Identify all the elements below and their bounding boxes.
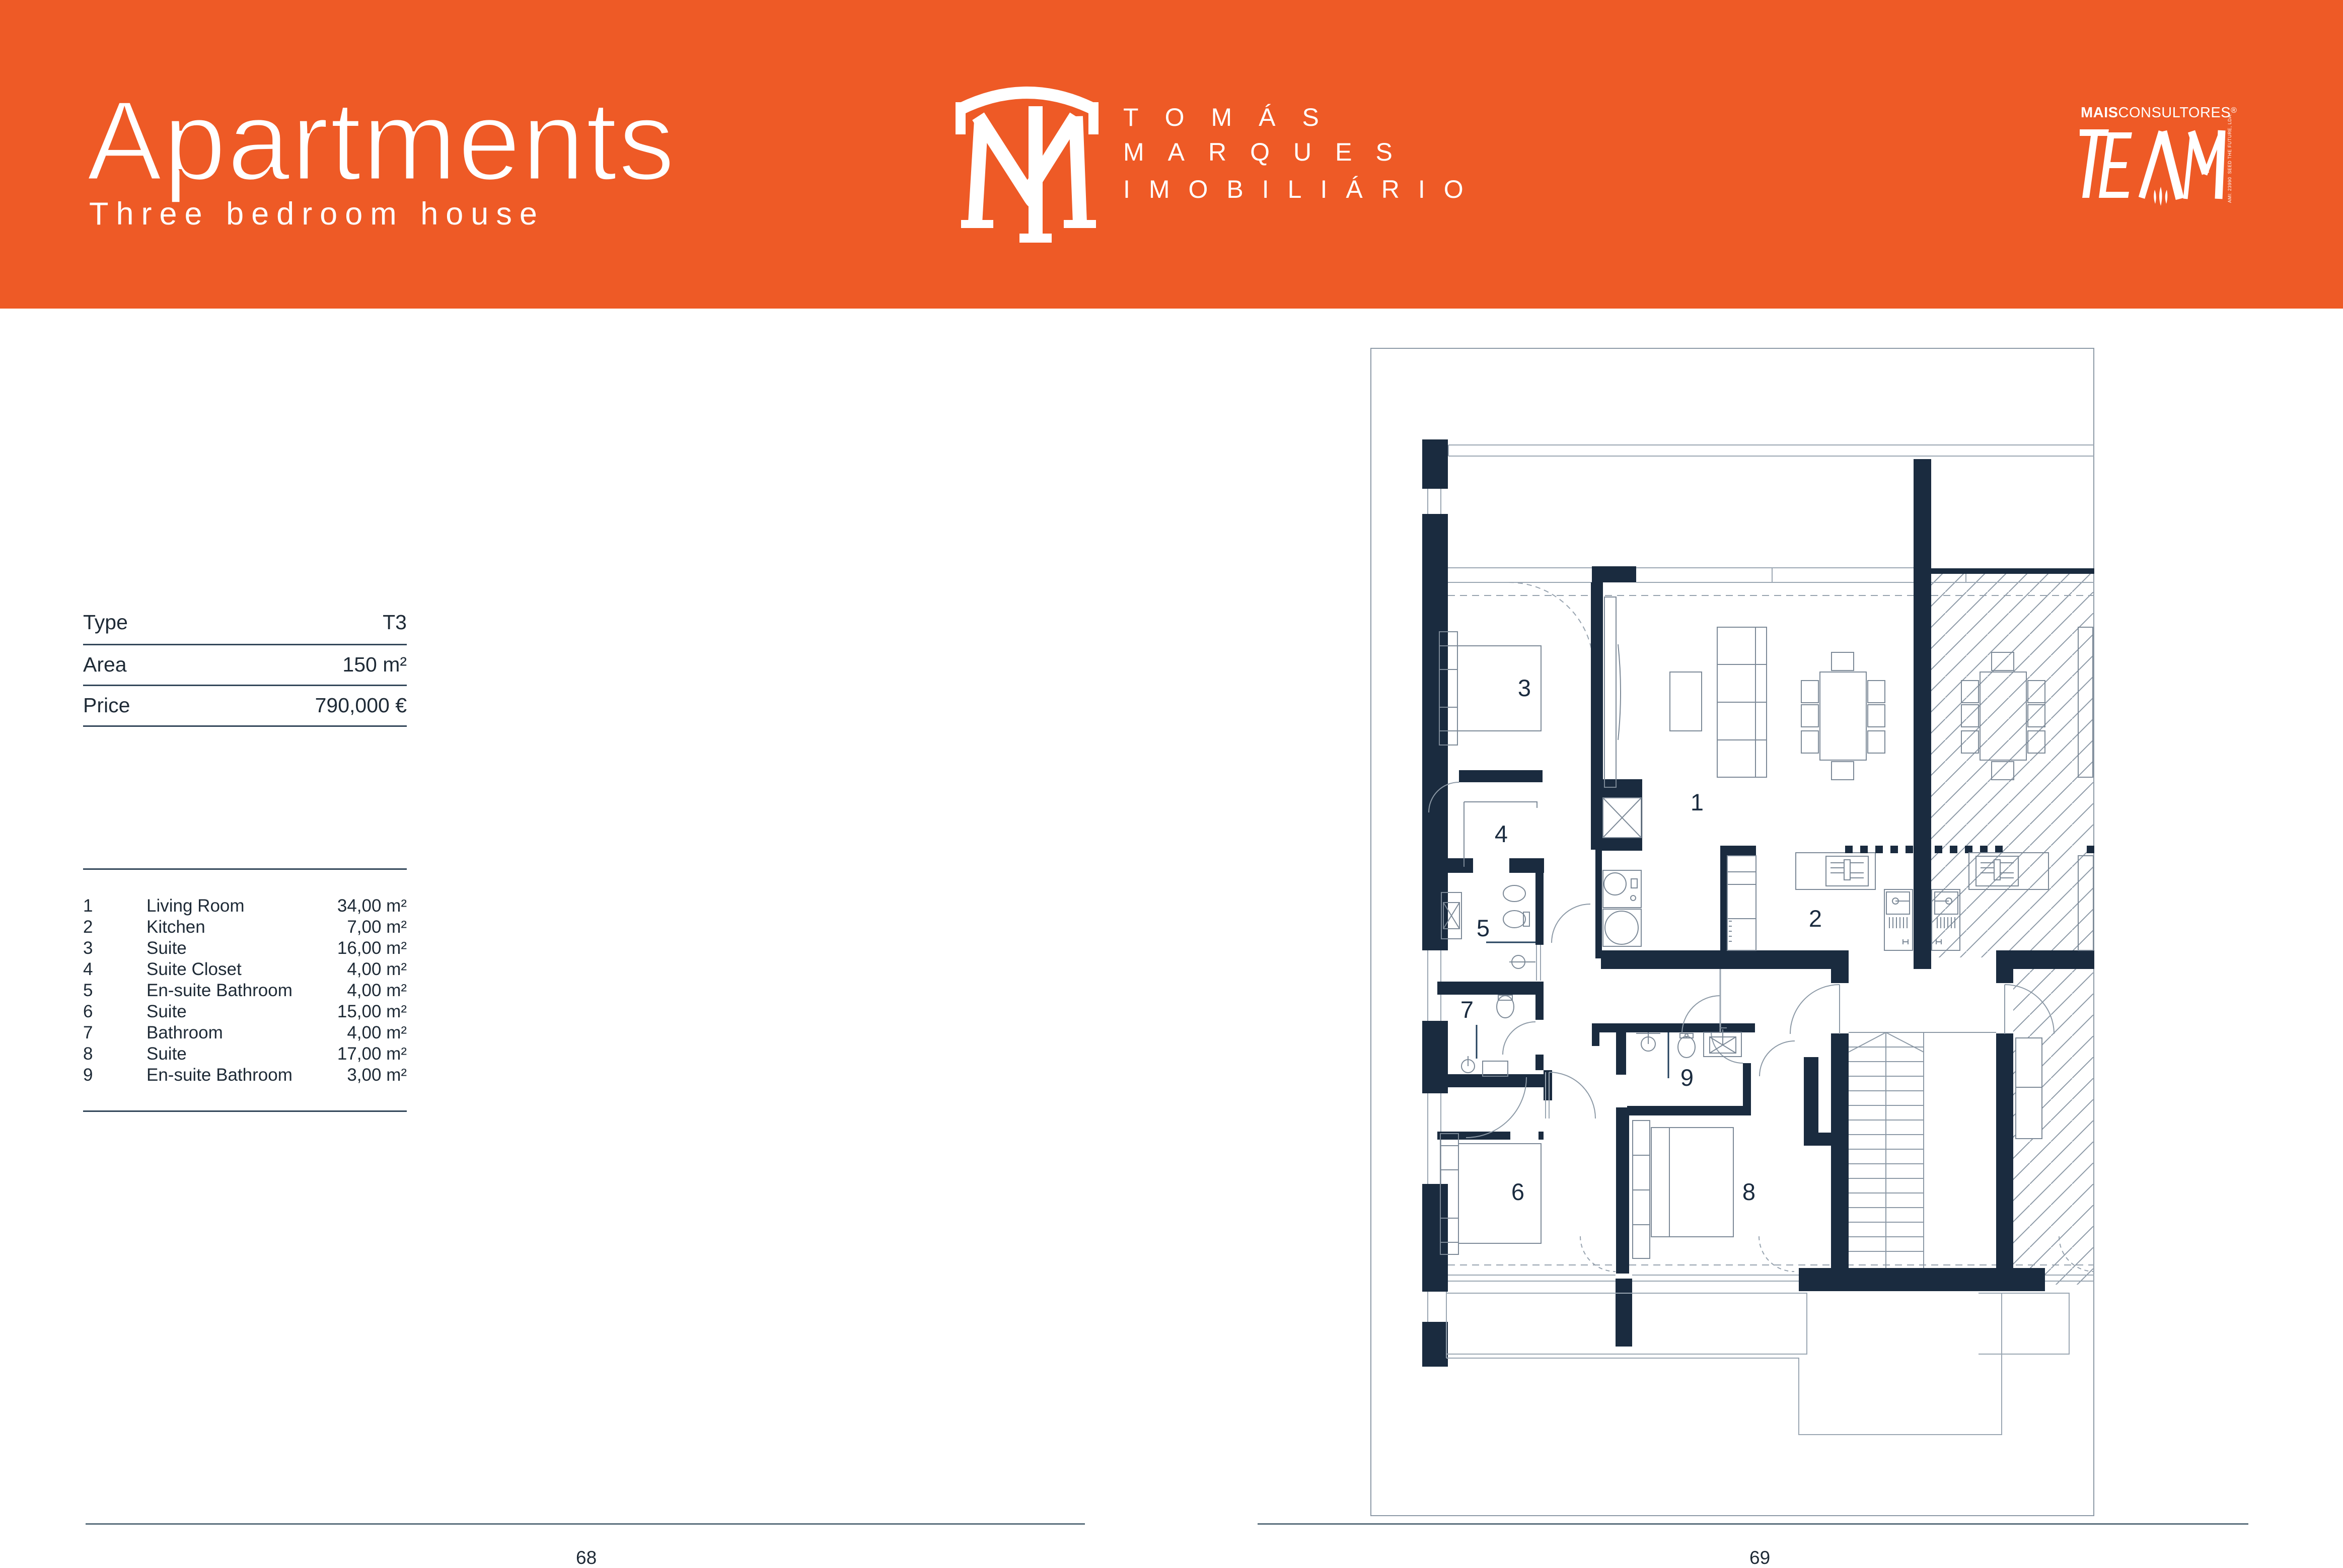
svg-text:7: 7 <box>1460 996 1474 1023</box>
svg-text:9: 9 <box>1680 1064 1694 1091</box>
svg-text:1: 1 <box>1691 789 1704 815</box>
svg-text:6: 6 <box>1511 1178 1524 1205</box>
svg-text:2: 2 <box>1809 905 1822 932</box>
svg-text:5: 5 <box>1477 915 1490 941</box>
svg-text:3: 3 <box>1518 675 1531 701</box>
svg-text:8: 8 <box>1742 1178 1755 1205</box>
svg-text:4: 4 <box>1495 820 1508 847</box>
